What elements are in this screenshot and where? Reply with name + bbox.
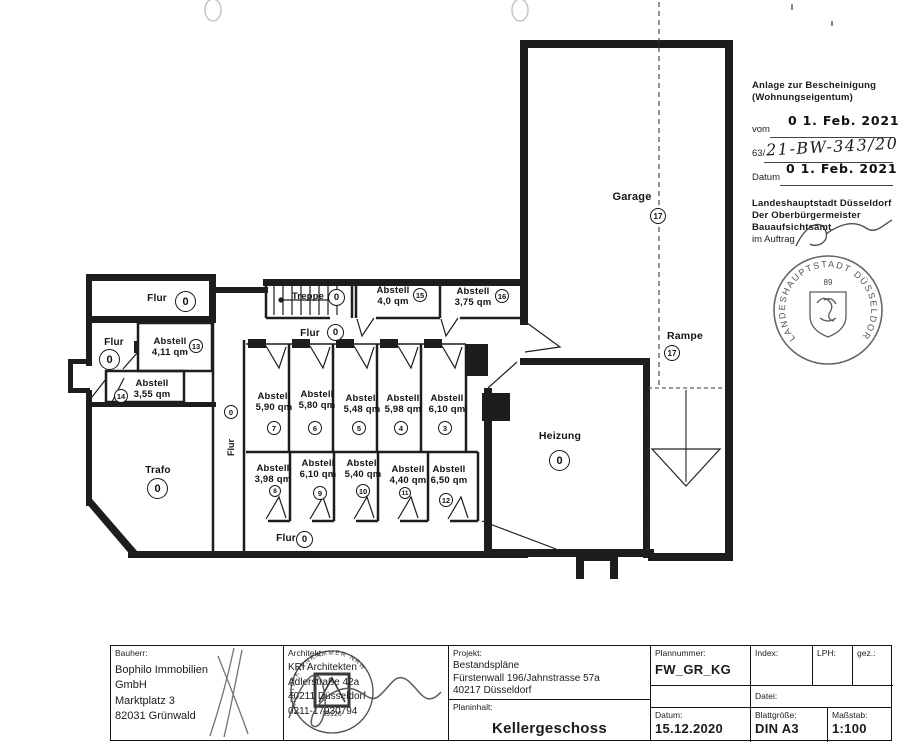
titleblock-projekt-cell: Projekt: Bestandspläne Fürstenwall 196/J…	[449, 646, 650, 700]
garage-walls	[520, 40, 733, 561]
planinhalt-value: Kellergeschoss	[453, 720, 646, 737]
room-number-abstell-16: 16	[495, 289, 509, 303]
room-number-abstell-10: 10	[356, 484, 370, 498]
titleblock-index-cell: Index:	[751, 646, 813, 686]
room-label-abstell-16: Abstell3,75 qm	[447, 287, 499, 309]
titleblock-datei-cell: Datei:	[751, 686, 891, 708]
room-label-abstell-9: Abstell6,10 qm	[296, 459, 340, 481]
vom-label: vom	[752, 124, 770, 135]
datum-cell-label: Datum:	[655, 710, 746, 720]
room-number-abstell-4: 4	[394, 421, 408, 435]
certificate-title-line2: (Wohnungseigentum)	[752, 92, 853, 103]
room-label-abstell-8: Abstell3,98 qm	[251, 464, 295, 486]
file-prefix: 63/	[752, 148, 765, 159]
room-number-abstell-12: 12	[439, 493, 453, 507]
plannummer-value: FW_GR_KG	[655, 662, 746, 677]
room-label-flur-vertical: Flur	[226, 424, 236, 456]
datum-value: 15.12.2020	[655, 721, 746, 736]
room-number-flur-left: 0	[99, 349, 120, 370]
room-number-abstell-3: 3	[438, 421, 452, 435]
room-label-abstell-6: Abstell5,80 qm	[295, 390, 339, 412]
room-number-abstell-7: 7	[267, 421, 281, 435]
svg-text:LANDESHAUPTSTADT DÜSSELDORF: LANDESHAUPTSTADT DÜSSELDORF	[762, 248, 879, 343]
room-label-abstell-11: Abstell4,40 qm	[386, 465, 430, 487]
titleblock-right-grid: Plannummer: FW_GR_KG Index: LPH: gez.: D…	[651, 646, 891, 740]
room-label-flur-left: Flur	[92, 337, 136, 349]
architekt-signature	[283, 652, 453, 740]
scan-specks	[791, 4, 833, 26]
im-auftrag-label: im Auftrag	[752, 234, 795, 245]
room-label-abstell-14: Abstell3,55 qm	[126, 379, 178, 401]
room-label-abstell-7: Abstell5,90 qm	[252, 392, 296, 414]
titleblock-planinhalt-cell: Planinhalt: Kellergeschoss	[449, 700, 650, 742]
room-number-abstell-11: 11	[399, 487, 411, 499]
room-number-flur-top-left: 0	[175, 291, 196, 312]
duesseldorf-round-stamp: LANDESHAUPTSTADT DÜSSELDORF 89	[762, 248, 894, 380]
room-number-abstell-6: 6	[308, 421, 322, 435]
planinhalt-label: Planinhalt:	[453, 702, 646, 712]
stamp-ring-text: LANDESHAUPTSTADT DÜSSELDORF	[762, 248, 879, 343]
room-label-abstell-13: Abstell4,11 qm	[144, 337, 196, 359]
titleblock-datum-cell: Datum: 15.12.2020	[651, 708, 751, 742]
coat-of-arms	[810, 292, 846, 337]
lph-label: LPH:	[817, 648, 848, 658]
plannummer-label: Plannummer:	[655, 648, 746, 658]
room-label-garage: Garage	[607, 191, 657, 204]
room-label-heizung: Heizung	[533, 430, 587, 442]
heizung-walls	[466, 344, 650, 554]
room-number-flur-bottom: 0	[296, 531, 313, 548]
room-number-trafo: 0	[147, 478, 168, 499]
index-label: Index:	[755, 648, 808, 658]
room-label-abstell-10: Abstell5,40 qm	[341, 459, 385, 481]
room-number-abstell-8: 8	[269, 485, 281, 497]
titleblock-lph-cell: LPH:	[813, 646, 853, 686]
blattgroesse-label: Blattgröße:	[755, 710, 823, 720]
room-label-rampe: Rampe	[661, 330, 709, 342]
massstab-label: Maßstab:	[832, 710, 887, 720]
datum-underline	[780, 184, 893, 186]
room-label-treppe: Treppe	[286, 292, 330, 303]
room-number-heizung: 0	[549, 450, 570, 471]
blattgroesse-value: DIN A3	[755, 721, 823, 736]
projekt-label: Projekt:	[453, 648, 646, 658]
room-number-flur-mid: 0	[327, 324, 344, 341]
projekt-lines: Bestandspläne Fürstenwall 196/Jahnstrass…	[453, 660, 646, 698]
vom-date-stamp: 0 1. Feb. 2021	[788, 113, 899, 128]
room-label-abstell-12: Abstell6,50 qm	[427, 465, 471, 487]
room-number-flur-vertical: 0	[224, 405, 238, 419]
projekt-line2: Fürstenwall 196/Jahnstrasse 57a	[453, 673, 646, 686]
room-label-abstell-3: Abstell6,10 qm	[425, 394, 469, 416]
room-number-abstell-14: 14	[114, 389, 128, 403]
punch-holes	[205, 0, 528, 21]
projekt-line1: Bestandspläne	[453, 660, 646, 673]
room-number-treppe: 0	[328, 289, 345, 306]
titleblock-mid-column: Projekt: Bestandspläne Fürstenwall 196/J…	[449, 646, 651, 740]
titleblock-gez-cell: gez.:	[853, 646, 893, 686]
titleblock-plannummer-cell: Plannummer: FW_GR_KG	[651, 646, 751, 686]
rampe-markings	[648, 2, 726, 552]
room-label-trafo: Trafo	[136, 465, 180, 477]
room-label-abstell-15: Abstell4,0 qm	[367, 286, 419, 308]
room-number-garage: 17	[650, 208, 666, 224]
room-label-abstell-5: Abstell5,48 qm	[340, 394, 384, 416]
bauherr-signature	[190, 646, 270, 738]
titleblock-massstab-cell: Maßstab: 1:100	[828, 708, 891, 742]
room-number-rampe: 17	[664, 345, 680, 361]
room-number-abstell-5: 5	[352, 421, 366, 435]
titleblock-empty-cell	[651, 686, 751, 708]
titleblock-blattgroesse-cell: Blattgröße: DIN A3	[751, 708, 828, 742]
room-number-abstell-13: 13	[189, 339, 203, 353]
room-number-abstell-15: 15	[413, 288, 427, 302]
room-label-abstell-4: Abstell5,98 qm	[381, 394, 425, 416]
gez-label: gez.:	[857, 648, 889, 658]
room-number-abstell-9: 9	[313, 486, 327, 500]
certificate-title-line1: Anlage zur Bescheinigung	[752, 80, 876, 91]
stamp-number: 89	[824, 278, 833, 287]
datum-label: Datum	[752, 172, 780, 183]
projekt-line3: 40217 Düsseldorf	[453, 685, 646, 698]
room-label-flur-mid: Flur	[296, 328, 324, 340]
datum-date-stamp: 0 1. Feb. 2021	[786, 161, 897, 176]
massstab-value: 1:100	[832, 721, 887, 736]
room-label-flur-top-left: Flur	[135, 293, 179, 305]
authority-line1: Landeshauptstadt Düsseldorf	[752, 198, 891, 209]
basement-floor-plan-sheet: Flur 0 Flur 0 Abstell4,11 qm 13 Abstell3…	[0, 0, 900, 746]
datei-label: Datei:	[755, 691, 887, 701]
